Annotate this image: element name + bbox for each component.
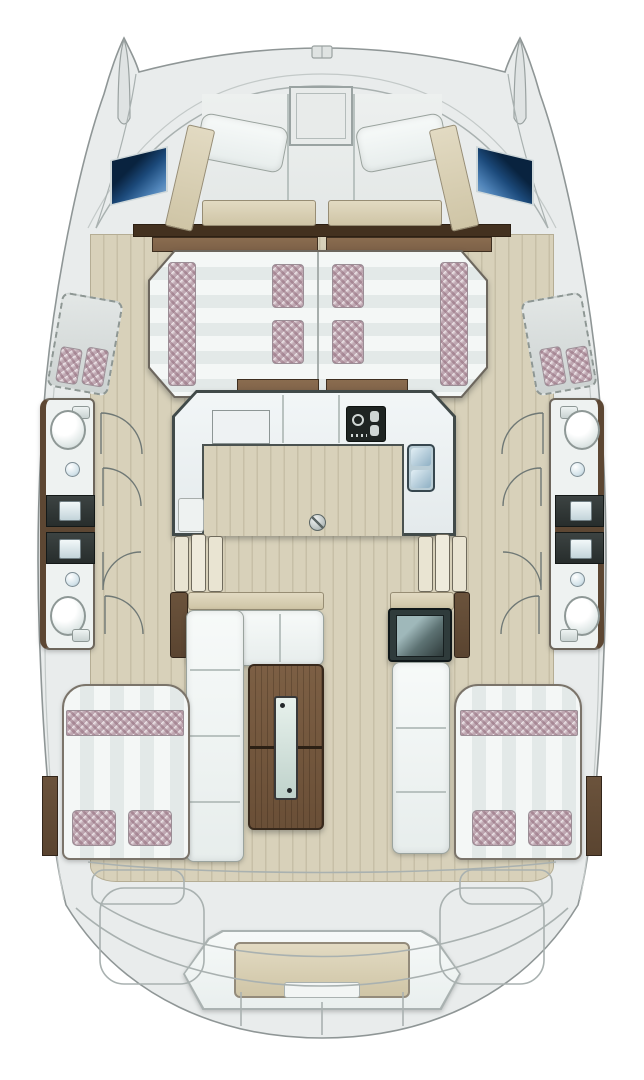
berth-center-seam — [317, 252, 319, 396]
stove-burner-round — [352, 414, 364, 426]
galley-floor-opening — [202, 444, 404, 536]
vanity-basin — [59, 501, 81, 521]
toilet-tank — [560, 629, 578, 642]
crew-berth-pad — [565, 345, 593, 384]
cool-box-lid — [396, 615, 444, 657]
starboard-hull-window — [476, 146, 534, 206]
bed-blanket-band — [460, 710, 578, 736]
port-heads — [40, 398, 95, 650]
counter-seam-1 — [282, 395, 284, 443]
washbasin-fwd — [65, 462, 80, 477]
stair-step — [435, 534, 450, 592]
hatch-inner-frame — [296, 93, 346, 139]
sink-basin-2 — [411, 470, 431, 488]
bed-blanket-band — [66, 710, 184, 736]
vanity-aft — [46, 532, 95, 564]
cushion-seam — [190, 735, 240, 737]
stove-knobs — [351, 434, 367, 437]
starboard-heads — [549, 398, 604, 650]
stairs-starboard — [418, 534, 470, 592]
crew-berth-pad — [539, 346, 567, 387]
stair-step — [174, 536, 189, 592]
berth-pillow-1 — [272, 264, 304, 308]
table-latch — [287, 788, 292, 793]
vanity-basin — [59, 539, 81, 559]
bench-cushion-notch — [284, 982, 360, 998]
foredeck-hatch — [289, 86, 353, 146]
counter-seam-2 — [338, 395, 340, 443]
vanity-fwd — [46, 495, 95, 527]
starboard-bow-tip — [514, 40, 526, 124]
berth-pillow-2 — [332, 264, 364, 308]
forward-lounge-berth — [148, 250, 488, 398]
bed-pillow — [128, 810, 172, 846]
toilet-tank — [72, 629, 90, 642]
aft-cabin-port-bed — [62, 684, 190, 860]
toilet-fwd — [50, 410, 86, 450]
table-latch — [280, 703, 285, 708]
stair-step — [452, 536, 467, 592]
vanity-aft — [555, 532, 604, 564]
cockpit-sofa-side — [186, 610, 244, 862]
cushion-seam — [396, 727, 446, 729]
floor-plan — [0, 0, 644, 1080]
stairs-port — [174, 534, 226, 592]
berth-pillow-4 — [332, 320, 364, 364]
washbasin-fwd — [570, 462, 585, 477]
worktop-hatch — [212, 410, 270, 444]
berth-runner-port — [168, 262, 196, 386]
cockpit-backrest-port — [188, 592, 324, 610]
berth-runner-starboard — [440, 262, 468, 386]
vanity-basin — [570, 539, 592, 559]
cushion-seam — [279, 614, 281, 662]
window-glass — [478, 148, 532, 204]
cushion-seam — [190, 669, 240, 671]
wardrobe-starboard — [586, 776, 602, 856]
cockpit-table — [248, 664, 324, 830]
bed-pillow — [72, 810, 116, 846]
port-bow-tip — [118, 40, 130, 124]
bed-pillow — [472, 810, 516, 846]
table-leaf-insert — [274, 696, 298, 800]
galley-sink — [407, 444, 435, 492]
cushion-seam — [396, 791, 446, 793]
washbasin-aft — [570, 572, 585, 587]
window-glass — [112, 148, 166, 204]
stove-burner-oval-2 — [370, 425, 379, 436]
bed-pillow — [528, 810, 572, 846]
cushion-seam — [190, 801, 240, 803]
galley-cabinet — [178, 498, 204, 532]
stove-burner-oval-1 — [370, 411, 379, 422]
port-hull-window — [110, 146, 168, 206]
forward-seat-base-port — [202, 200, 316, 226]
toilet-fwd — [564, 410, 600, 450]
stair-step — [208, 536, 223, 592]
stair-step — [418, 536, 433, 592]
floor-fitting — [309, 514, 326, 531]
aft-cabin-starboard-bed — [454, 684, 582, 860]
forward-seat-base-starboard — [328, 200, 442, 226]
vanity-basin — [570, 501, 592, 521]
stair-step — [191, 534, 206, 592]
anchor-fitting — [312, 46, 332, 58]
crew-berth-pad — [55, 346, 83, 385]
sink-basin-1 — [411, 448, 431, 466]
stove — [346, 406, 386, 442]
vanity-fwd — [555, 495, 604, 527]
washbasin-aft — [65, 572, 80, 587]
cockpit-bench-starboard — [392, 662, 450, 854]
cool-box — [388, 608, 452, 662]
cockpit-coaming-starboard — [454, 592, 470, 658]
crew-berth-pad — [81, 346, 109, 387]
berth-pillow-3 — [272, 320, 304, 364]
wardrobe-port — [42, 776, 58, 856]
transom-bench — [183, 930, 461, 1010]
